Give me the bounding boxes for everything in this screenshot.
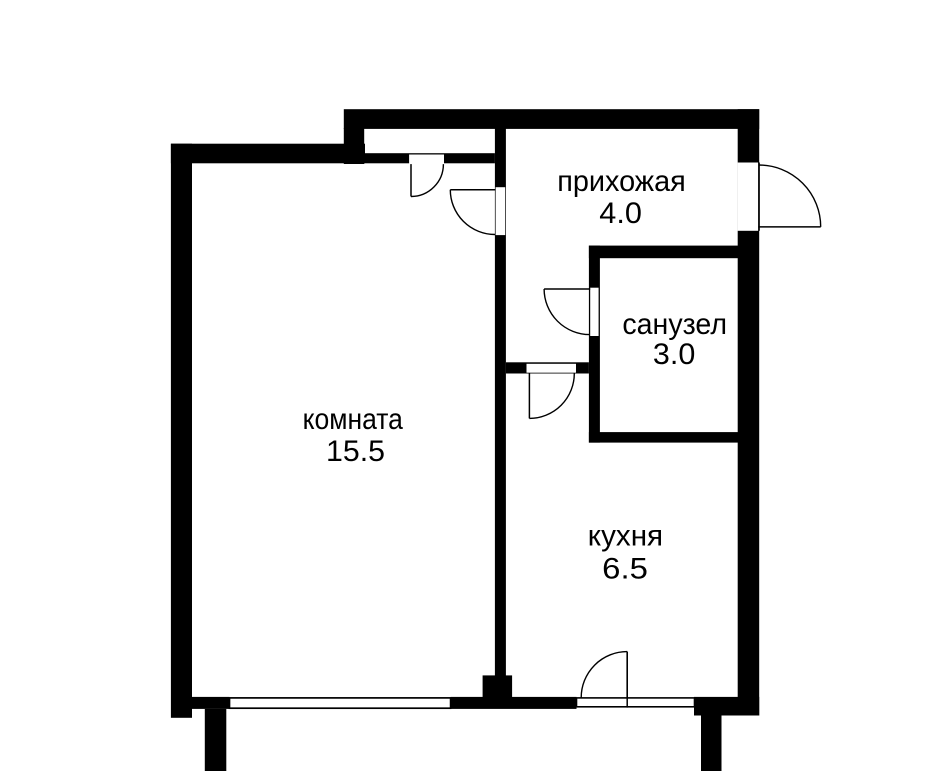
svg-text:15.5: 15.5 (326, 435, 385, 468)
svg-text:прихожая: прихожая (557, 165, 686, 198)
svg-text:комната: комната (303, 403, 404, 436)
svg-text:кухня: кухня (588, 520, 663, 553)
svg-text:4.0: 4.0 (599, 197, 642, 230)
svg-text:санузел: санузел (622, 308, 727, 341)
svg-text:6.5: 6.5 (602, 553, 648, 586)
svg-text:3.0: 3.0 (653, 338, 695, 371)
